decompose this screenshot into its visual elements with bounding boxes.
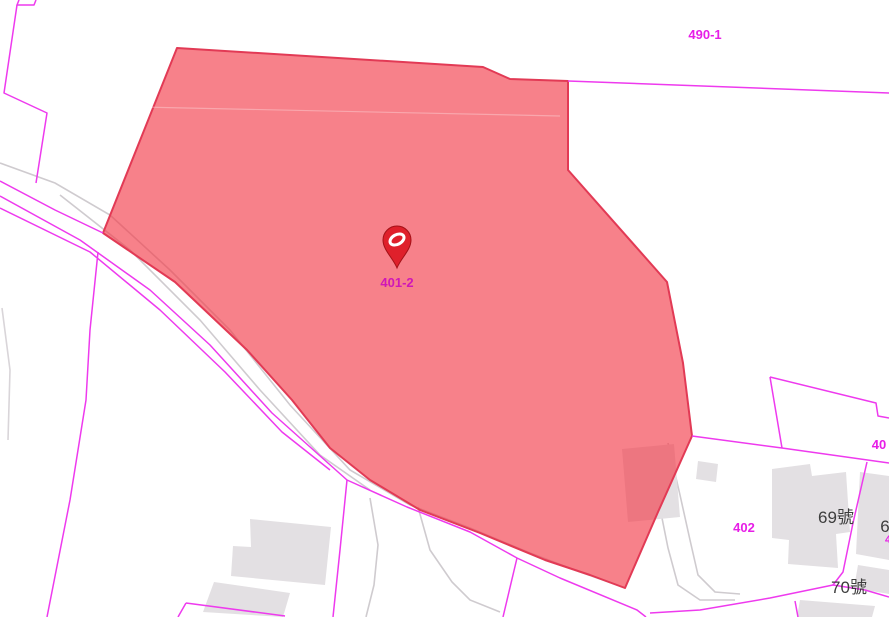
- parcel-boundary-line: [568, 81, 889, 93]
- parcel-boundary-line: [692, 436, 889, 463]
- parcel-boundary-line: [770, 377, 889, 418]
- building-footprint: [797, 600, 875, 617]
- parcel-label-402: 402: [733, 520, 755, 535]
- parcel-label-clipped: 4: [885, 534, 889, 546]
- parcel-boundary-line: [795, 601, 798, 617]
- road-outline: [366, 498, 378, 617]
- road-outline: [2, 308, 10, 440]
- house-label-69: 69號: [818, 508, 854, 527]
- cadastral-map[interactable]: 490-1401-24024069號70號64: [0, 0, 889, 617]
- parcel-label-401-2: 401-2: [380, 275, 413, 290]
- parcel-boundary-line: [503, 558, 517, 617]
- parcel-boundary-line: [333, 480, 347, 617]
- highlight-layer: [103, 48, 692, 588]
- parcel-boundary-line: [4, 5, 47, 183]
- building-footprint: [231, 519, 331, 585]
- parcel-boundary-line: [17, 0, 36, 5]
- building-footprint: [696, 461, 718, 482]
- parcel-boundary-line: [0, 181, 103, 233]
- building-footprint: [203, 582, 290, 617]
- parcel-label-490-1: 490-1: [688, 27, 721, 42]
- house-label-70: 70號: [831, 578, 867, 597]
- parcel-boundary-line: [770, 377, 782, 448]
- parcel-boundary-line: [178, 603, 186, 617]
- parcel-boundary-line: [47, 252, 98, 617]
- map-viewport[interactable]: 490-1401-24024069號70號64: [0, 0, 889, 617]
- parcel-label-40: 40: [872, 437, 886, 452]
- highlighted-parcel-401-2[interactable]: [103, 48, 692, 588]
